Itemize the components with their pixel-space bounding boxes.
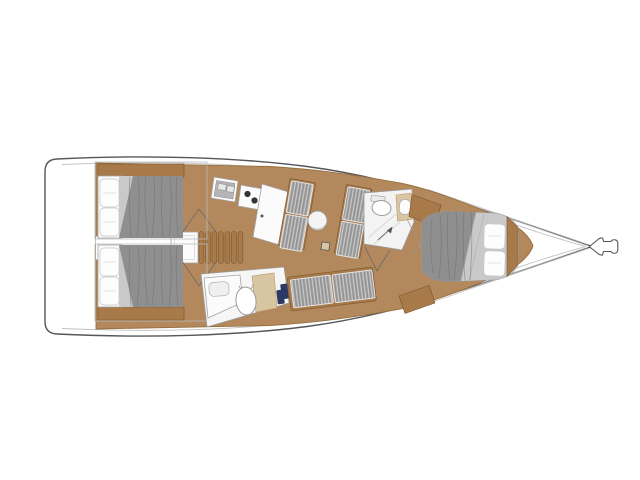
mast-post bbox=[321, 242, 330, 251]
settee-cushion bbox=[332, 270, 375, 303]
burner bbox=[251, 197, 257, 203]
counter-knob bbox=[261, 215, 264, 218]
burner bbox=[244, 191, 250, 197]
pillow bbox=[484, 251, 506, 277]
floor-plan-canvas: sailboat hull with bowsprit companionway… bbox=[0, 0, 640, 480]
companionway-steps bbox=[199, 232, 243, 264]
washbasin bbox=[209, 281, 230, 296]
bowsprit-fitting bbox=[590, 238, 618, 255]
sink-bowl-right bbox=[227, 186, 235, 193]
settee-cushion bbox=[290, 275, 333, 308]
yacht-floor-plan: sailboat hull with bowsprit companionway… bbox=[0, 0, 640, 480]
headboard-trim bbox=[98, 164, 184, 177]
salon-table bbox=[308, 211, 327, 230]
footboard-trim bbox=[98, 307, 184, 320]
pillow bbox=[484, 224, 506, 250]
sink-bowl-left bbox=[218, 183, 227, 190]
